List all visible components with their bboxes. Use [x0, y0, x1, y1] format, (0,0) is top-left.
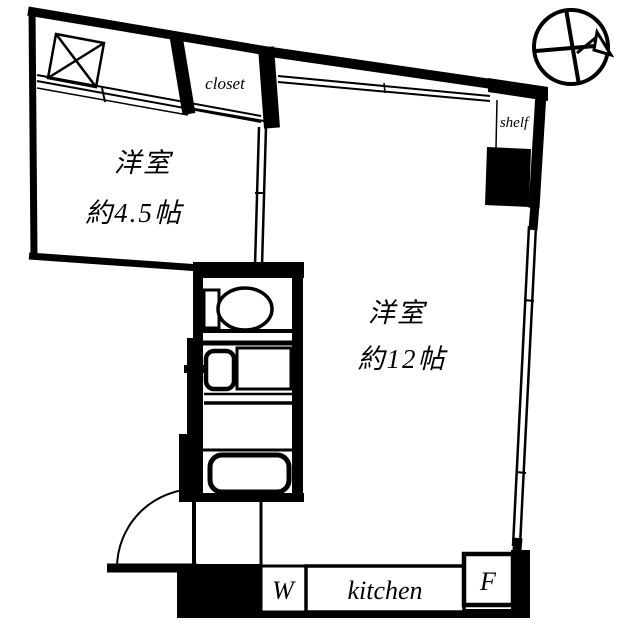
wall-right: [292, 262, 303, 502]
shelf-line: [496, 100, 497, 148]
room-large-size-label: 約12帖: [358, 344, 449, 374]
shelf-label: shelf: [500, 115, 530, 131]
wall-left: [32, 9, 34, 257]
wall-left: [193, 262, 203, 342]
washer-label: W: [272, 576, 296, 605]
window-cap: [533, 204, 535, 230]
closet-wall-left: [176, 36, 189, 114]
shelf-box: [485, 147, 531, 207]
fridge-label: F: [479, 567, 497, 596]
partition-line: [262, 127, 266, 266]
toilet-bowl: [218, 288, 272, 330]
room-small-size-label: 約4.5帖: [85, 198, 185, 228]
compass-north-icon: [534, 9, 611, 85]
crossed-box-icon: [48, 34, 104, 87]
window-top-tick: [384, 83, 385, 93]
wall-left: [187, 338, 203, 438]
wall-bottom: [29, 256, 200, 268]
window-tick: [516, 472, 526, 473]
wall-top: [194, 262, 304, 278]
washbasin-faucet: [184, 365, 207, 373]
crossed-box-diagonal: [48, 43, 104, 78]
room-small-name-label: 洋室: [114, 148, 174, 178]
wall-left: [179, 434, 203, 502]
toilet-icon: [204, 288, 272, 330]
floor-plan: 洋室 約4.5帖 洋室 約12帖 closet shelf W kitchen …: [0, 0, 632, 640]
window-glazing: [520, 226, 536, 546]
closet-wall-right: [266, 47, 272, 128]
window-right: [513, 204, 536, 562]
washbasin-counter: [237, 348, 291, 389]
washbasin-bowl: [206, 351, 234, 389]
storage-front-line: [37, 88, 188, 115]
closet-label: closet: [205, 74, 246, 93]
window-glazing: [513, 226, 529, 546]
room-large-name-label: 洋室: [368, 298, 428, 328]
floor-plan-drawing: 洋室 約4.5帖 洋室 約12帖 closet shelf W kitchen …: [0, 0, 632, 640]
window-tick: [524, 300, 534, 301]
bathtub-icon: [210, 455, 289, 492]
kitchen-label: kitchen: [347, 576, 422, 605]
wall-right-upper: [534, 93, 541, 208]
bathroom: [179, 262, 304, 502]
room-small: [28, 9, 273, 268]
partition-line: [255, 127, 259, 266]
